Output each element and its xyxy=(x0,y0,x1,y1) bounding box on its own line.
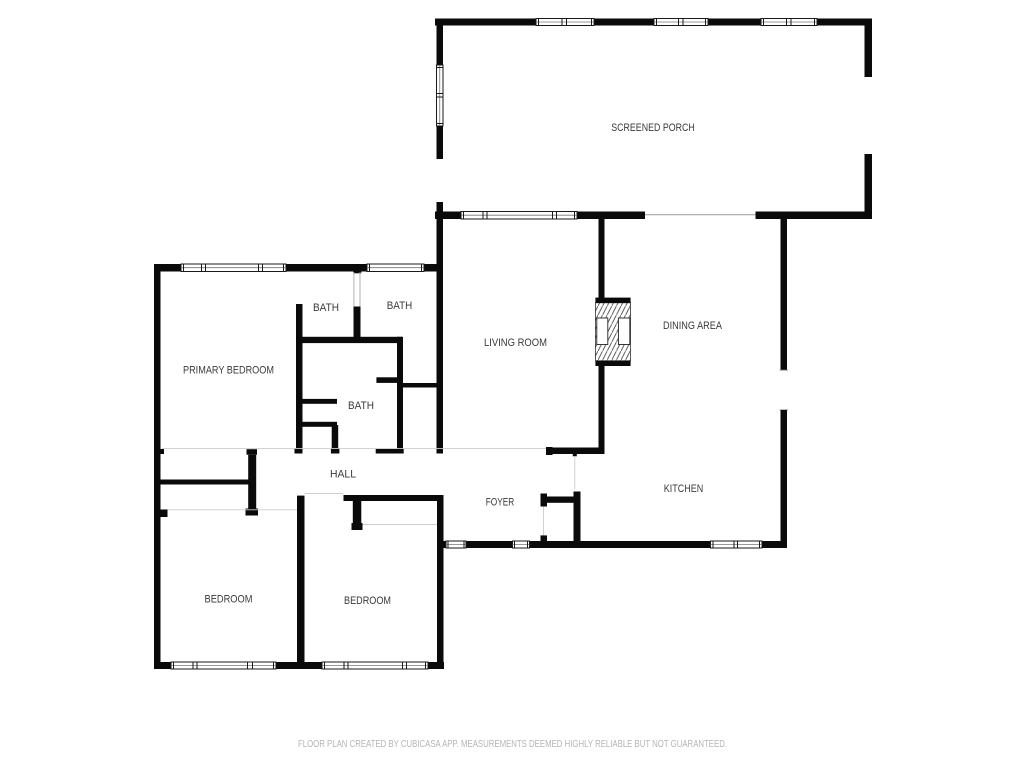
svg-text:FOYER: FOYER xyxy=(486,497,515,509)
svg-text:LIVING ROOM: LIVING ROOM xyxy=(484,337,547,349)
svg-text:BATH: BATH xyxy=(313,302,339,314)
svg-text:PRIMARY BEDROOM: PRIMARY BEDROOM xyxy=(183,365,274,377)
svg-text:BEDROOM: BEDROOM xyxy=(344,595,391,607)
svg-text:FLOOR PLAN CREATED BY CUBICASA: FLOOR PLAN CREATED BY CUBICASA APP. MEAS… xyxy=(298,739,727,750)
svg-text:SCREENED PORCH: SCREENED PORCH xyxy=(611,122,695,134)
svg-text:KITCHEN: KITCHEN xyxy=(664,483,704,495)
svg-text:BEDROOM: BEDROOM xyxy=(205,594,253,606)
svg-text:BATH: BATH xyxy=(348,400,374,412)
svg-text:HALL: HALL xyxy=(330,469,356,481)
svg-text:DINING AREA: DINING AREA xyxy=(663,320,723,332)
svg-text:BATH: BATH xyxy=(387,300,413,312)
